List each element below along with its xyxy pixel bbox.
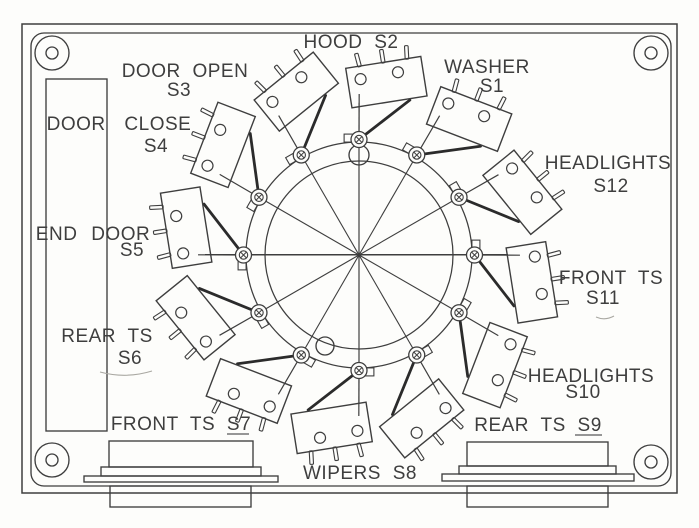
mounting-hole-inner	[645, 456, 657, 468]
switch-hole	[477, 109, 491, 123]
switch-s4	[178, 98, 359, 255]
switch-terminal	[354, 53, 361, 67]
foot-step	[467, 486, 608, 507]
switch-s3	[246, 42, 359, 255]
mounting-hole-inner	[46, 454, 58, 466]
cam-spoke	[359, 255, 459, 313]
scan-artifact	[100, 371, 152, 375]
mounting-hole-outer	[35, 36, 69, 70]
cam-spoke	[301, 155, 359, 255]
switch-body	[463, 322, 528, 407]
switch-body-group	[178, 98, 255, 188]
switch-label-s3-line1: DOOR OPEN	[122, 61, 249, 82]
switch-label-s7-line1: FRONT TS S7	[111, 414, 251, 435]
switch-label-s12-line2: S12	[593, 176, 628, 197]
switch-terminal	[521, 348, 535, 355]
switch-s7	[202, 255, 359, 436]
switch-hole	[409, 425, 424, 440]
switch-hole	[198, 334, 213, 349]
switch-hole	[177, 247, 190, 260]
foot-step	[109, 441, 253, 467]
switch-terminal	[404, 46, 408, 60]
switch-lever	[417, 146, 481, 155]
switch-terminal	[452, 79, 459, 93]
switch-body-group	[344, 44, 427, 108]
foot-step	[467, 442, 608, 466]
switch-label-s9-line1: REAR TS S9	[474, 415, 602, 436]
foot-step	[110, 486, 251, 507]
switch-body-group	[148, 187, 212, 270]
switch-label-s5-line2: S5	[120, 240, 144, 261]
switch-label-s4-line2: S4	[144, 136, 168, 157]
switch-hole	[529, 190, 544, 205]
switch-lever	[459, 313, 468, 377]
mounting-hole-inner	[645, 47, 657, 59]
switch-hole	[294, 69, 309, 84]
switches-layer	[146, 42, 572, 468]
foot-step	[101, 467, 261, 476]
cam-spoke	[259, 255, 359, 313]
switch-terminal	[555, 300, 569, 304]
scan-artifact	[596, 316, 614, 319]
switch-body	[380, 379, 464, 458]
switch-terminal	[547, 250, 561, 257]
switch-hole	[354, 73, 367, 86]
switch-hole	[200, 159, 214, 173]
switch-label-s1-line1: WASHER	[444, 57, 530, 78]
switch-hole	[535, 288, 548, 301]
switch-s9	[359, 255, 472, 468]
switch-body	[254, 52, 338, 131]
switch-lever	[237, 355, 301, 364]
mounting-foot-left	[84, 441, 278, 507]
mounting-hole-outer	[634, 445, 668, 479]
switch-body	[346, 56, 427, 107]
panel-diagram: WASHERS1HOOD S2DOOR OPENS3DOOR CLOSES4EN…	[0, 0, 699, 528]
mounting-hole-outer	[35, 443, 69, 477]
scanned-drawing-page: WASHERS1HOOD S2DOOR OPENS3DOOR CLOSES4EN…	[0, 0, 699, 528]
switch-label-s4-line1: DOOR CLOSE	[47, 114, 192, 135]
switch-hole	[351, 425, 364, 438]
switch-terminal	[153, 229, 167, 235]
switch-hole	[170, 210, 183, 223]
cam-spoke	[359, 155, 417, 255]
switch-body	[156, 276, 235, 360]
switch-body-group	[146, 276, 235, 368]
switch-hole	[529, 250, 542, 263]
cam-spoke	[259, 197, 359, 255]
switch-body-group	[291, 402, 374, 466]
switch-hole	[438, 400, 453, 415]
switch-terminal	[259, 417, 266, 431]
switch-body	[191, 102, 256, 187]
switch-terminal	[357, 443, 364, 457]
locating-pin-circle	[316, 337, 334, 355]
switch-hole	[491, 373, 505, 387]
switch-lever	[250, 133, 259, 197]
cam-spoke	[301, 255, 359, 355]
switch-terminal	[183, 155, 197, 162]
switch-hole	[392, 66, 405, 79]
switch-terminal	[157, 253, 171, 260]
switch-label-s2-line1: HOOD S2	[303, 32, 398, 53]
switch-hole	[263, 399, 277, 413]
switch-label-s1-line2: S1	[480, 76, 504, 97]
cam-spoke	[359, 197, 459, 255]
switch-terminal	[150, 205, 164, 209]
foot-step	[459, 466, 616, 474]
switch-s12	[359, 142, 572, 255]
mounting-hole-outer	[634, 36, 668, 70]
switch-label-s10-line2: S10	[565, 382, 600, 403]
switch-label-s11-line1: FRONT TS	[559, 268, 663, 289]
foot-step	[442, 474, 634, 481]
switch-label-s6-line1: REAR TS	[61, 326, 153, 347]
foot-step	[84, 476, 278, 482]
switch-s6	[146, 255, 359, 368]
switch-hole	[173, 305, 188, 320]
switch-hole	[213, 123, 227, 137]
mounting-hole-inner	[46, 47, 58, 59]
switch-hole	[227, 387, 241, 401]
switch-label-s6-line2: S6	[118, 348, 142, 369]
switch-label-s12-line1: HEADLIGHTS	[545, 153, 671, 174]
switch-label-s8-line1: WIPERS S8	[303, 463, 417, 484]
switch-terminal	[333, 447, 339, 461]
switch-label-s3-line2: S3	[167, 80, 191, 101]
switch-body-group	[246, 42, 338, 131]
switch-hole	[265, 94, 280, 109]
switch-label-s11-line2: S11	[586, 288, 620, 309]
switch-body-group	[380, 379, 472, 468]
switch-hole	[504, 161, 519, 176]
switch-s1	[359, 74, 516, 255]
switch-body	[291, 402, 372, 453]
switch-body	[506, 242, 557, 323]
switch-body	[160, 187, 211, 268]
mounting-foot-right	[442, 442, 634, 507]
cam-spoke	[359, 255, 417, 355]
switch-hole	[314, 431, 327, 444]
switch-hole	[441, 96, 455, 110]
switch-hole	[503, 337, 517, 351]
switch-s10	[359, 255, 540, 412]
